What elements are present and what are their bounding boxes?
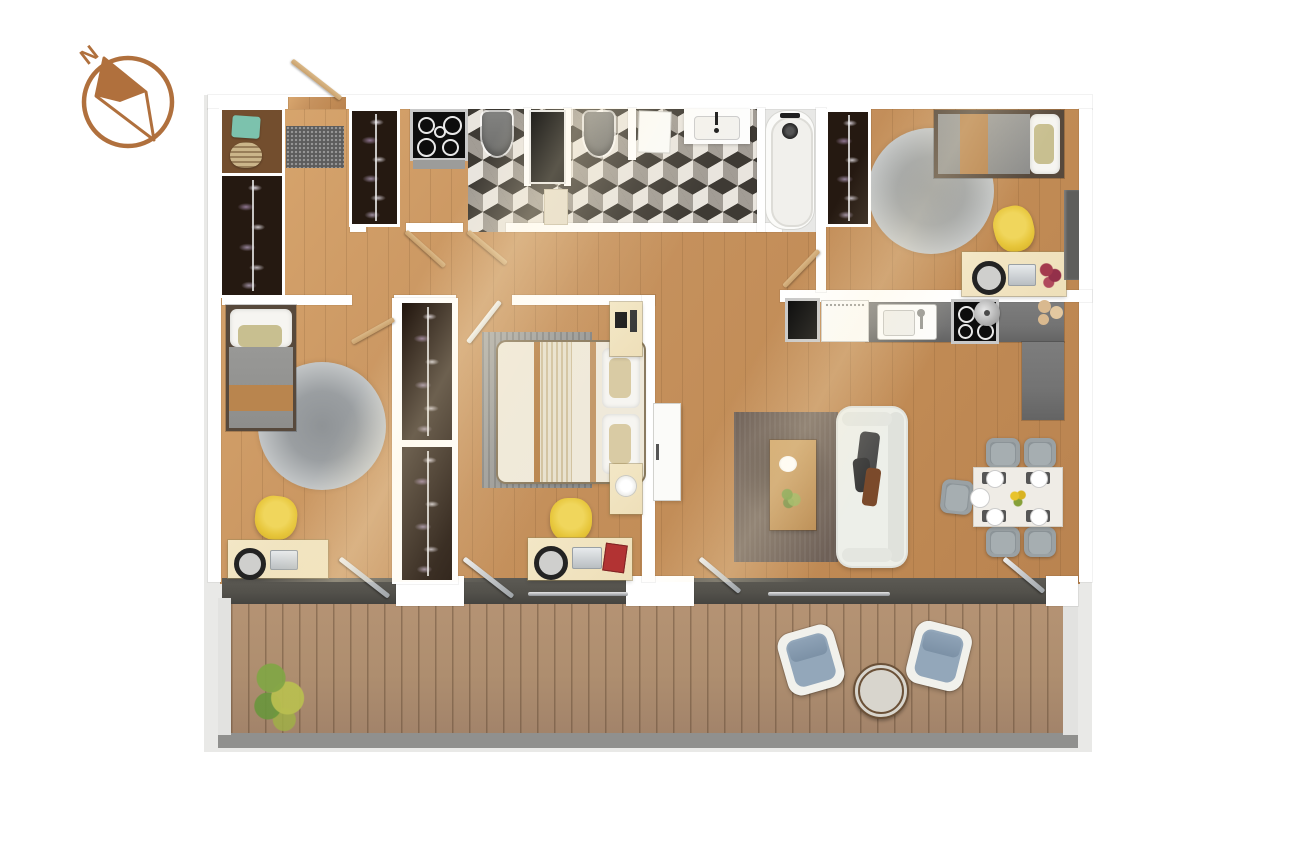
faucet-icon — [714, 128, 719, 133]
nightstand — [610, 302, 642, 356]
decor-bowl — [779, 456, 797, 472]
terrace-plant — [248, 654, 314, 734]
plate — [970, 488, 990, 508]
storage-basket — [230, 142, 262, 168]
single-bed — [226, 305, 296, 431]
burner-icon — [958, 324, 973, 339]
plate — [986, 470, 1004, 488]
sink-basin — [883, 310, 915, 336]
plate — [1030, 470, 1048, 488]
toilet — [482, 112, 512, 156]
bedroom2-wardrobe — [828, 112, 868, 224]
terrace-parapet-right — [1063, 598, 1078, 735]
dining-chair — [1024, 527, 1056, 557]
sliding-door-rail — [768, 592, 890, 596]
entry-wardrobe — [352, 111, 397, 224]
laptop-icon — [1008, 264, 1036, 286]
bathroom-sink-vanity — [684, 109, 750, 144]
bed-duvet-stripes — [538, 342, 572, 482]
sofa-armrest — [842, 412, 892, 426]
burner-icon — [417, 138, 436, 157]
wall-pier — [1046, 576, 1078, 606]
burner-icon — [958, 306, 975, 323]
wall-bedroom1-top — [222, 295, 352, 305]
washing-machine — [638, 111, 670, 152]
oven — [788, 301, 817, 339]
sliding-door-rail — [528, 592, 628, 596]
entry-doormat — [286, 126, 344, 168]
wall-corridor — [350, 223, 366, 232]
desk-clock-icon — [972, 261, 1006, 295]
desk-clock-icon — [534, 546, 568, 580]
picture-frame — [615, 312, 627, 328]
hall-wardrobe — [402, 303, 452, 440]
bed-runner — [229, 385, 293, 411]
hall-wardrobe — [402, 447, 452, 580]
bowl — [1038, 314, 1049, 325]
dining-chair — [986, 527, 1020, 557]
flower-centerpiece — [1007, 488, 1029, 508]
utility-cooktop — [413, 112, 465, 158]
bed-throw — [590, 342, 596, 482]
wall-bath-stub — [628, 108, 636, 160]
terrace-edge — [218, 733, 1078, 748]
wall-shower-stub — [524, 108, 531, 186]
coffee-table — [770, 440, 816, 530]
wall-left — [208, 109, 221, 582]
bedroom2-desk — [962, 252, 1066, 296]
floor-plan: N — [0, 0, 1300, 867]
wall-corridor — [406, 223, 463, 232]
master-door — [654, 404, 680, 500]
sofa-armrest — [842, 548, 892, 562]
flower-vase — [1038, 260, 1062, 288]
dishwasher — [822, 301, 868, 341]
wall-pier — [626, 576, 694, 606]
wall-bedroom2-left — [816, 108, 826, 292]
terrace-parapet-left — [218, 598, 231, 735]
bathtub — [766, 111, 814, 229]
compass-north-icon: N — [60, 30, 190, 155]
utility-shelf — [413, 160, 465, 169]
laptop-icon — [572, 547, 602, 569]
kitchen-counter-arm — [1022, 342, 1064, 420]
sofa-backrest — [888, 412, 904, 562]
compass-label: N — [75, 40, 103, 69]
bed-throw — [534, 342, 540, 482]
dishwasher-controls — [825, 303, 865, 307]
plate — [1030, 508, 1048, 526]
bed-pillow — [1034, 124, 1054, 164]
master-desk — [528, 538, 632, 580]
plate — [986, 508, 1004, 526]
toilet — [584, 112, 614, 156]
sofa — [836, 406, 908, 568]
picture-frame — [630, 310, 637, 332]
books — [602, 543, 628, 574]
bed-runner — [960, 114, 988, 174]
laptop-icon — [270, 550, 298, 570]
wall-right — [1079, 109, 1092, 582]
bath-faucet-icon — [780, 113, 800, 118]
shower — [531, 112, 564, 182]
folded-towel — [231, 115, 260, 139]
bath-cabinet — [545, 190, 567, 224]
wall-bathtub-left — [757, 108, 765, 232]
dining-chair — [1024, 438, 1056, 468]
entry-shelf-unit — [222, 110, 282, 173]
cooking-pot — [974, 300, 1000, 326]
burner-icon — [418, 117, 435, 134]
bedroom1-desk — [228, 540, 328, 578]
burner-icon — [434, 126, 446, 138]
kitchen-sink — [878, 305, 936, 339]
table-plant — [776, 484, 804, 510]
single-bed — [934, 110, 1064, 178]
bed-pillow — [238, 325, 282, 347]
dining-chair — [986, 438, 1020, 468]
door-handle-icon — [656, 444, 659, 460]
nightstand — [610, 464, 642, 514]
wall-corridor — [506, 223, 782, 232]
faucet-icon — [715, 112, 718, 125]
terrace-side-table — [853, 663, 909, 719]
bowl — [1050, 306, 1063, 319]
entry-wardrobe — [222, 176, 282, 295]
shower-head-icon — [782, 123, 798, 139]
accent-pillow — [609, 424, 631, 464]
burner-icon — [442, 139, 459, 156]
desk-chair-yellow — [550, 498, 592, 542]
faucet-icon — [920, 315, 923, 329]
table-lamp — [616, 476, 636, 496]
tall-cabinet — [1064, 190, 1079, 280]
wall-shower-stub — [564, 108, 571, 186]
accent-pillow — [609, 358, 631, 398]
desk-clock-icon — [234, 548, 266, 580]
dining-table — [974, 468, 1062, 526]
pot-lid-knob — [984, 310, 990, 316]
bed-pillow — [602, 348, 640, 408]
double-bed — [498, 342, 644, 482]
